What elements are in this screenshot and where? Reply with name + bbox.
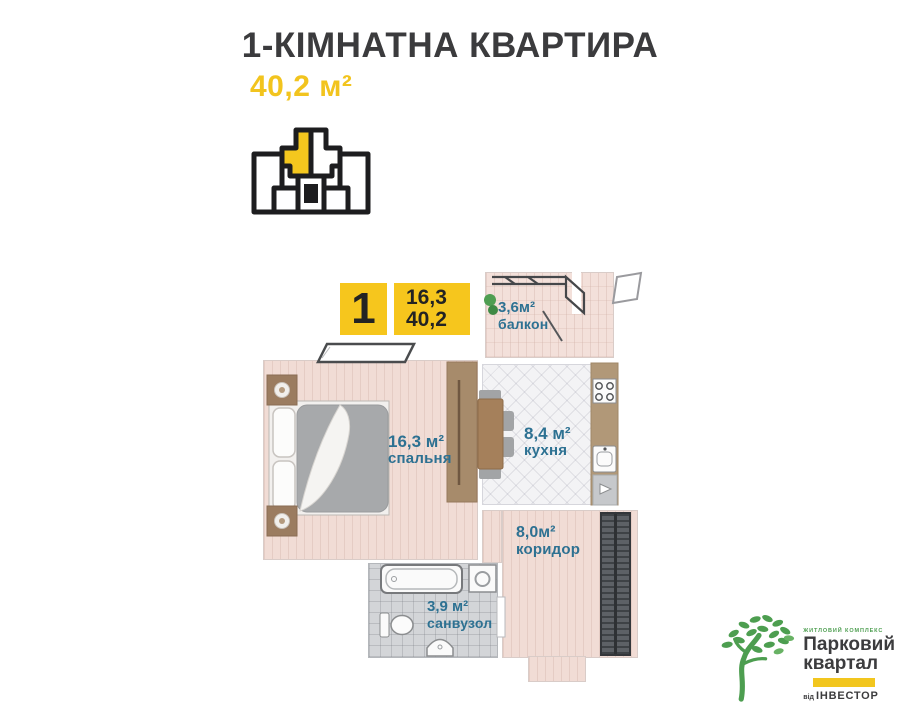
bedroom-area: 16,3 м² <box>388 432 452 451</box>
bedroom-label: 16,3 м² спальня <box>388 432 452 468</box>
balcony-area: 3,6м² <box>498 300 548 317</box>
logo-accent-bar <box>813 678 875 687</box>
building-locator-icon <box>248 124 374 224</box>
corridor-closet <box>600 512 631 656</box>
balcony-label: 3,6м² балкон <box>498 300 548 332</box>
corridor-label: 8,0м² коридор <box>516 524 580 559</box>
kitchen-name: кухня <box>524 443 571 460</box>
balcony-divider-wall <box>572 272 581 314</box>
kitchen-label: 8,4 м² кухня <box>524 424 571 460</box>
areas-badge: 16,3 40,2 <box>394 283 470 335</box>
bathroom-label: 3,9 м² санвузол <box>427 599 492 631</box>
floorplan-poster: 1-КІМНАТНА КВАРТИРА 40,2 м² 1 16,3 40,2 <box>0 0 900 720</box>
corridor-floor-left <box>482 510 502 563</box>
logo-developer: відІНВЕСТОР <box>803 690 895 702</box>
bathroom-name: санвузол <box>427 616 492 632</box>
logo-brand-line1: Парковий <box>803 636 895 655</box>
logo-text-block: ЖИТЛОВИЙ КОМПЛЕКС Парковий квартал відІН… <box>803 606 895 710</box>
developer-logo: ЖИТЛОВИЙ КОМПЛЕКС Парковий квартал відІН… <box>715 606 895 710</box>
page-title: 1-КІМНАТНА КВАРТИРА <box>0 26 900 66</box>
living-area-value: 16,3 <box>406 287 447 309</box>
tree-icon <box>715 606 799 706</box>
logo-developer-name: ІНВЕСТОР <box>816 690 879 702</box>
balcony-name: балкон <box>498 317 548 333</box>
total-area-value: 40,2 <box>406 309 447 331</box>
total-area-label: 40,2 м² <box>250 70 352 104</box>
locator-entrance-mark <box>304 184 318 203</box>
rooms-count-badge: 1 <box>340 283 387 335</box>
logo-developer-prefix: від <box>803 694 814 701</box>
entrance-floor-tab <box>528 656 586 682</box>
corridor-name: коридор <box>516 542 580 559</box>
side-window-icon <box>613 273 641 303</box>
bedroom-name: спальня <box>388 451 452 468</box>
bathroom-area: 3,9 м² <box>427 599 492 616</box>
kitchen-area: 8,4 м² <box>524 424 571 443</box>
logo-brand-line2: квартал <box>803 655 895 674</box>
corridor-area: 8,0м² <box>516 524 580 542</box>
